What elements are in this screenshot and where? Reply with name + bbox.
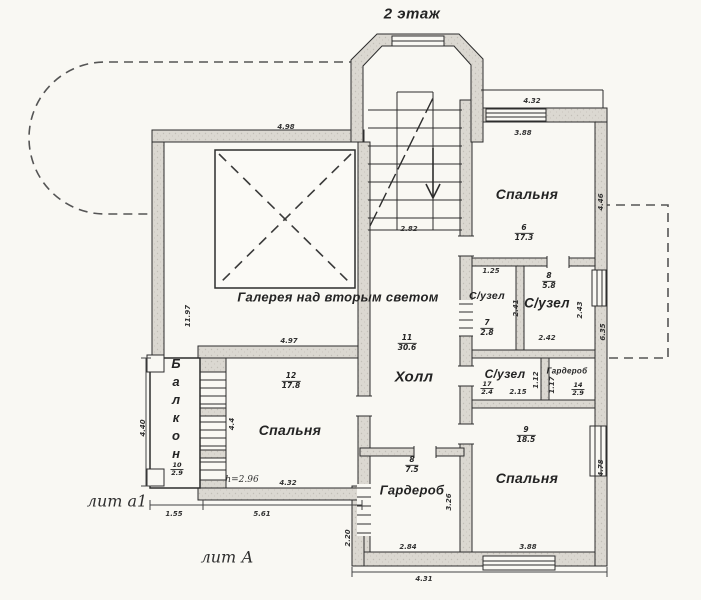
room-label-bedroom-se: Спальня <box>496 470 558 486</box>
west-window-wall <box>200 358 226 488</box>
ceiling-height-note: h=2.96 <box>225 475 258 485</box>
room-label-bedroom-ne: Спальня <box>496 186 558 202</box>
dim-bath-large-bottom: 2.42 <box>538 334 555 342</box>
dim-ne-top-inner: 3.88 <box>514 129 531 137</box>
room-label-hall: Холл <box>395 369 433 386</box>
room-tag-bedroom-se: 9 18.5 <box>517 426 536 444</box>
room-label-bathroom-mid: С/узел <box>485 367 526 381</box>
dim-balcony-side: 4.40 <box>139 419 147 436</box>
dim-wardrobe-bottom-width: 2.84 <box>399 543 416 551</box>
dim-east-mid: 6.35 <box>599 323 607 340</box>
dim-wardrobe-bottom-side: 3.26 <box>445 493 453 510</box>
room-tag-bedroom-w: 12 17.8 <box>282 372 301 390</box>
dim-gallery-wall: 4.97 <box>280 337 297 345</box>
room-tag-bathroom-upper-left: 7 2.8 <box>480 319 493 337</box>
dim-balcony-bottom: 1.55 <box>165 510 182 518</box>
dim-se-right: 4.78 <box>597 459 605 476</box>
room-area-bedroom-ne: 17.3 <box>515 234 534 243</box>
room-area-bathroom-upper-left: 2.8 <box>480 329 493 338</box>
dim-ne-right: 4.46 <box>597 193 605 210</box>
dim-bath-mid-bottom: 2.15 <box>509 388 526 396</box>
dim-ne-top-outer: 4.32 <box>523 97 540 105</box>
dim-w-bedroom-bottom: 4.32 <box>279 479 296 487</box>
room-label-wardrobe-bottom: Гардероб <box>380 483 445 498</box>
dim-bottom-step-side: 2.20 <box>344 529 352 546</box>
dim-gallery-top: 4.98 <box>277 123 294 131</box>
dim-bottom-right-outer: 4.31 <box>415 575 432 583</box>
room-area-hall: 30.6 <box>398 344 417 353</box>
room-label-balcony: Балкон <box>169 356 184 464</box>
dim-bath-mid-side: 1.12 <box>532 371 540 388</box>
room-tag-wardrobe-bottom: 8 7.5 <box>405 456 418 474</box>
dim-bath-small-top: 1.25 <box>482 267 499 275</box>
room-area-wardrobe-small: 2.9 <box>571 391 584 398</box>
floor-plan: 2 этаж Галерея над вторым светом Холл 11… <box>0 0 701 600</box>
room-area-balcony: 2.9 <box>170 471 183 478</box>
dim-w-bedroom-side: 4.4 <box>228 418 236 430</box>
dim-stair-width: 2.82 <box>400 225 417 233</box>
stair-direction-arrow <box>426 148 440 198</box>
room-label-bathroom-upper-right: С/узел <box>524 296 570 311</box>
room-area-bedroom-w: 17.8 <box>282 382 301 391</box>
void-opening <box>215 150 355 288</box>
room-label-bathroom-upper-left: С/узел <box>469 290 505 302</box>
dim-bath-large-side: 2.43 <box>576 301 584 318</box>
dim-west-wall: 11.97 <box>184 305 192 327</box>
room-area-wardrobe-bottom: 7.5 <box>405 466 418 475</box>
room-label-bedroom-w: Спальня <box>259 422 321 438</box>
dim-se-bottom: 3.88 <box>519 543 536 551</box>
dim-wardrobe-small-side: 1.17 <box>548 376 556 393</box>
floor-title: 2 этаж <box>384 6 441 23</box>
room-label-gallery: Галерея над вторым светом <box>237 290 438 305</box>
room-tag-balcony: 10 2.9 <box>170 462 183 478</box>
room-area-bathroom-upper-right: 5.8 <box>542 282 555 291</box>
room-tag-bathroom-mid: 17 2.4 <box>480 381 493 397</box>
room-area-bedroom-se: 18.5 <box>517 436 536 445</box>
room-tag-bathroom-upper-right: 8 5.8 <box>542 272 555 290</box>
building-mark-lit-a1: лит а1 <box>87 492 147 511</box>
room-tag-wardrobe-small: 14 2.9 <box>571 382 584 398</box>
room-label-wardrobe-small: Гардероб <box>547 367 588 376</box>
building-mark-lit-A: лит А <box>201 548 254 567</box>
dim-bath-small-side: 2.41 <box>512 299 520 316</box>
dim-bottom-left-outer: 5.61 <box>253 510 270 518</box>
parapet-line <box>481 90 603 108</box>
staircase <box>368 92 462 230</box>
room-area-bathroom-mid: 2.4 <box>480 390 493 397</box>
room-tag-bedroom-ne: 6 17.3 <box>515 224 534 242</box>
room-tag-hall: 11 30.6 <box>398 334 417 352</box>
